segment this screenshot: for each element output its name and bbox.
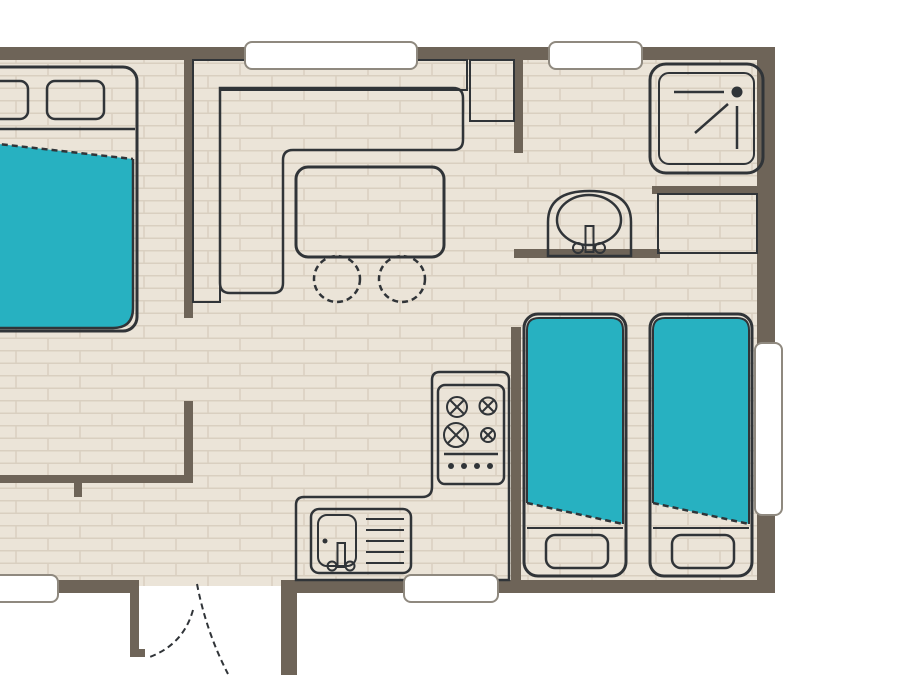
entrance-jamb-right xyxy=(281,580,297,675)
floor-plan xyxy=(0,0,900,675)
window-bottom-kitchen xyxy=(404,575,498,602)
wall-bedroom-lower xyxy=(184,401,193,483)
stove-knob xyxy=(474,463,480,469)
door-swing-arc xyxy=(147,610,193,658)
door-swing-arc xyxy=(197,584,228,674)
entrance-jamb-left-foot xyxy=(130,649,145,657)
floor-plan-page xyxy=(0,0,900,675)
wall-bathroom-west xyxy=(514,54,523,153)
window-bottom-left xyxy=(0,575,58,602)
bed-blanket xyxy=(653,318,749,524)
wall-bedroom-upper xyxy=(184,54,193,318)
bed-blanket xyxy=(527,318,623,524)
sink-dot xyxy=(323,539,328,544)
entrance-jamb-left xyxy=(130,580,139,657)
wall-bedroom-south xyxy=(0,475,193,483)
entrance-double-door-swing xyxy=(147,584,228,674)
bed-blanket xyxy=(0,141,133,328)
wall-twinroom-west xyxy=(511,327,521,580)
window-top-bathroom xyxy=(549,42,642,69)
stove-knob xyxy=(461,463,467,469)
stove-knob xyxy=(487,463,493,469)
window-top-living xyxy=(245,42,417,69)
shower-drain-dot xyxy=(732,87,743,98)
wall-wardrobe-north xyxy=(652,186,757,194)
window-right-twin-bedroom xyxy=(755,343,782,515)
wall-stub-hall xyxy=(74,483,82,497)
stove-knob xyxy=(448,463,454,469)
wall-bottom-right xyxy=(281,580,773,593)
